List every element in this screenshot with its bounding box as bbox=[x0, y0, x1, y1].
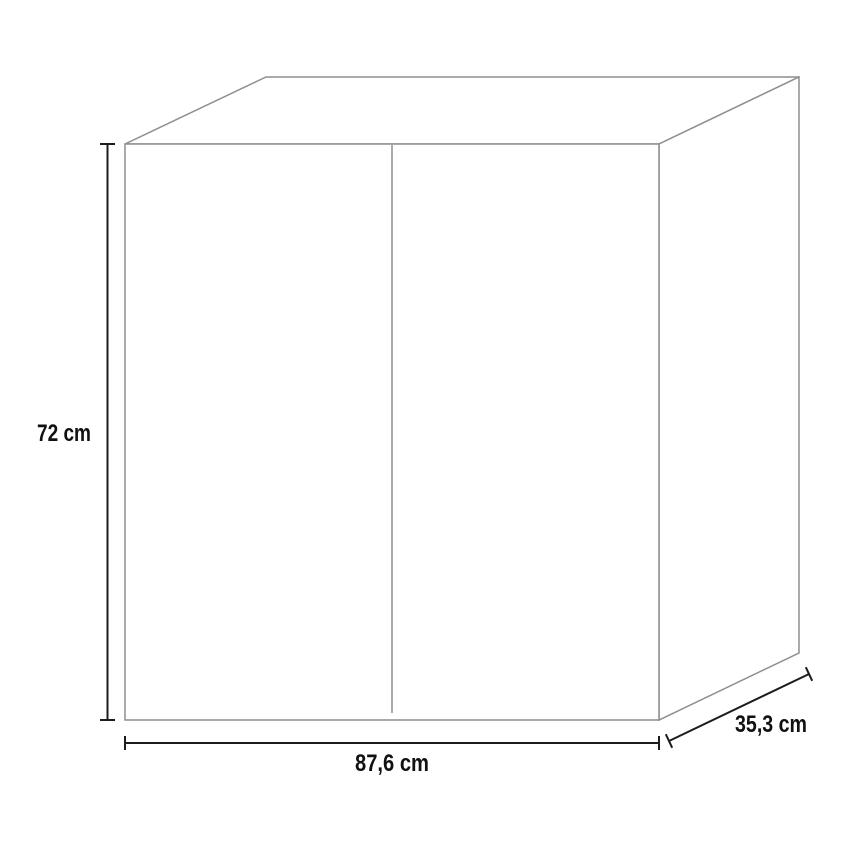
depth-dimension-label: 35,3 cm bbox=[735, 711, 807, 738]
height-dimension bbox=[100, 144, 115, 720]
cabinet-outline bbox=[125, 77, 799, 720]
width-dimension-label: 87,6 cm bbox=[355, 750, 429, 777]
dimension-diagram: 72 cm 87,6 cm 35,3 cm bbox=[0, 0, 850, 850]
cabinet-dimension-drawing: 72 cm 87,6 cm 35,3 cm bbox=[0, 0, 850, 850]
width-dimension bbox=[125, 736, 659, 750]
cabinet-right-face bbox=[659, 77, 799, 720]
height-dimension-label: 72 cm bbox=[37, 420, 91, 447]
